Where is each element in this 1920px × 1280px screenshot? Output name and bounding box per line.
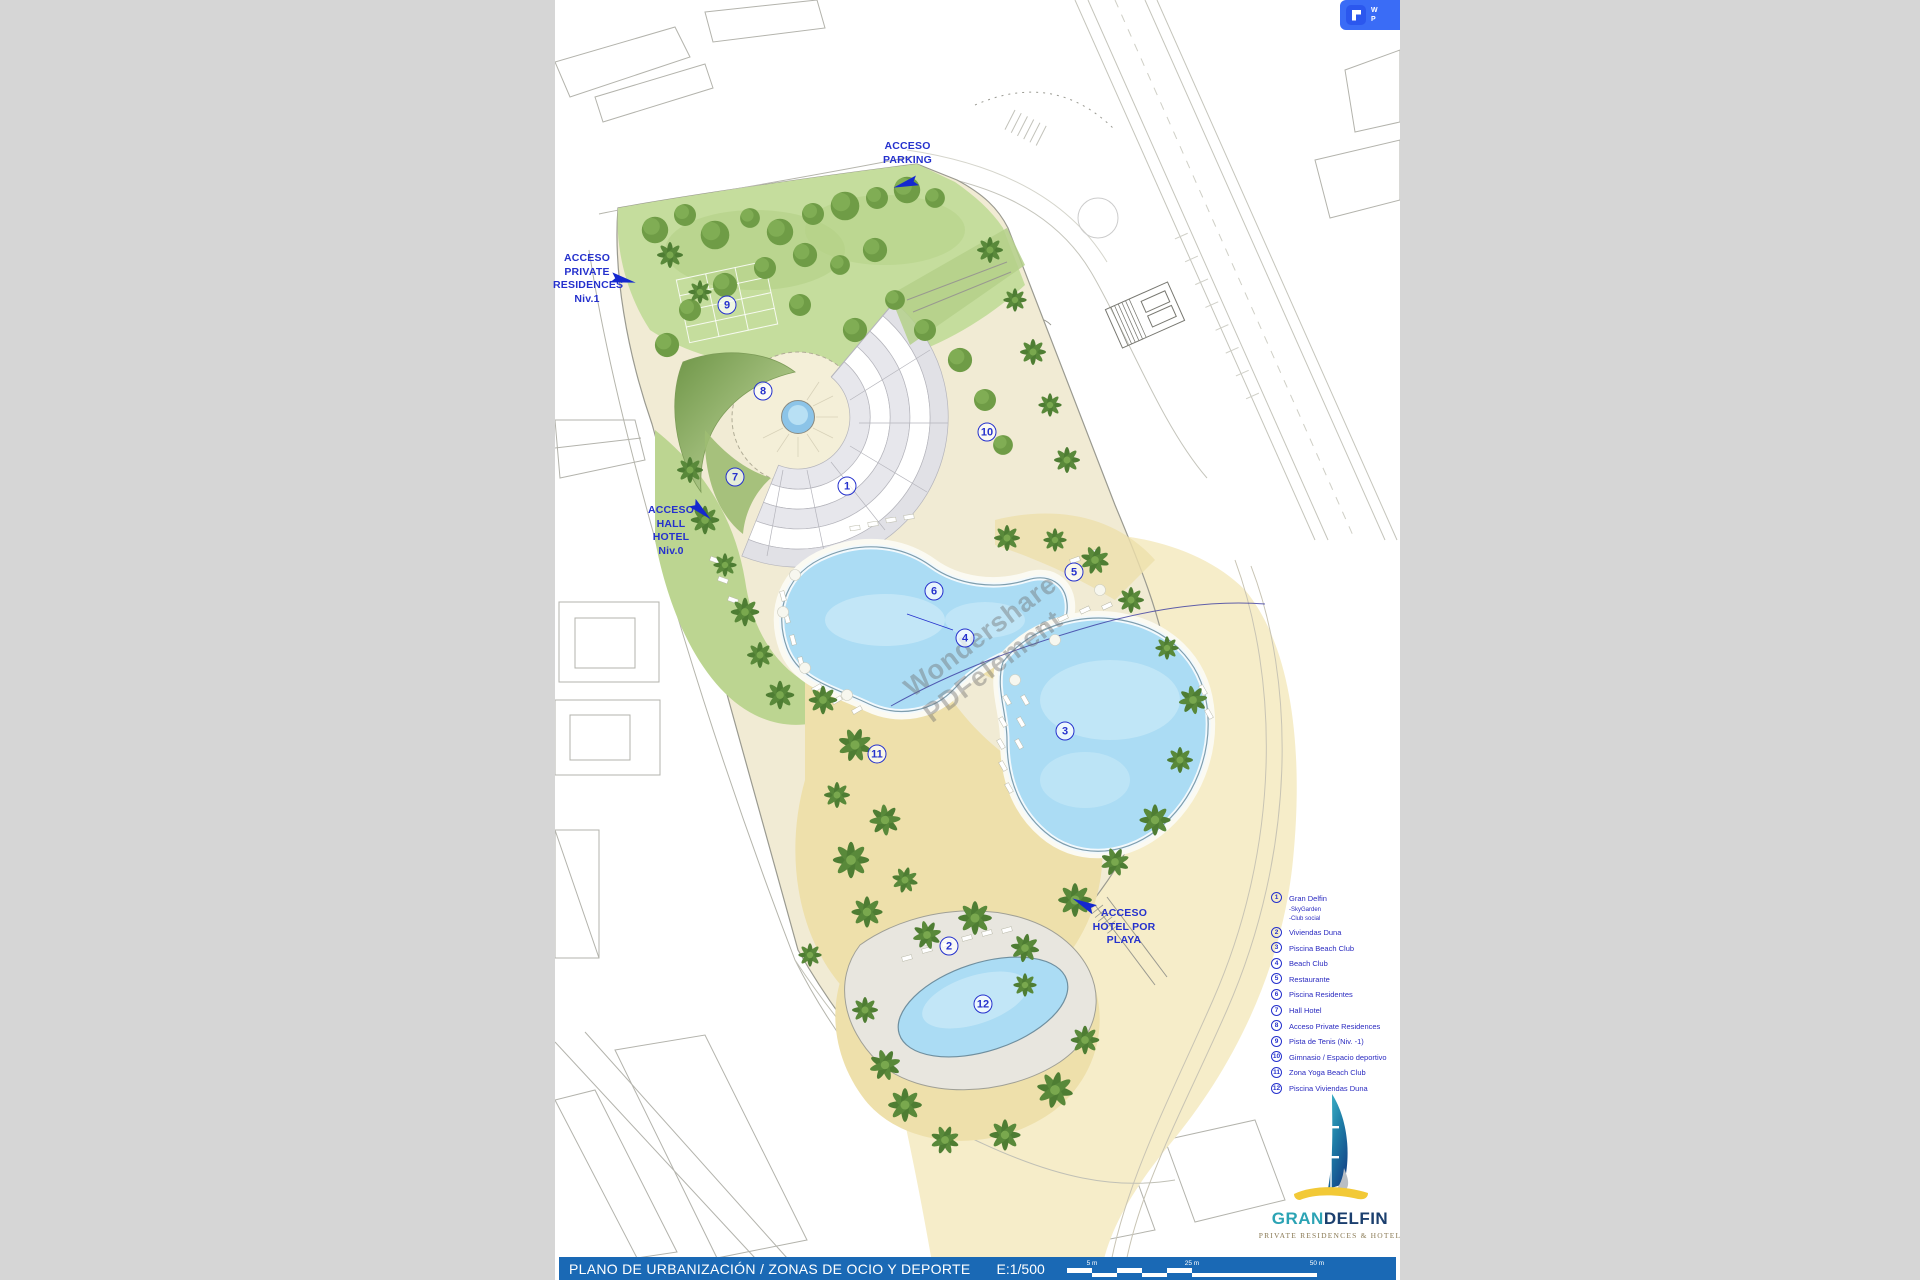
legend-item-sublabels: -SkyGarden-Club social (1289, 906, 1399, 924)
legend-item-6: 6Piscina Residentes (1271, 989, 1399, 1000)
pdfelement-badge-button[interactable]: W P (1340, 0, 1400, 30)
legend-item-number: 5 (1271, 973, 1282, 984)
badge-text: W P (1371, 6, 1387, 24)
legend-item-3: 3Piscina Beach Club (1271, 942, 1399, 953)
plan-marker-7: 7 (726, 468, 745, 487)
label-acceso-private-residences: ACCESO PRIVATE RESIDENCES Niv.1 (553, 252, 621, 307)
sheet-title-bar: PLANO DE URBANIZACIÓN / ZONAS DE OCIO Y … (559, 1257, 1396, 1280)
sheet-scale: E:1/500 (997, 1261, 1045, 1277)
legend-item-label: Piscina Residentes (1289, 989, 1353, 1000)
document-page: Wondershare PDFelement ACCESO PARKING AC… (555, 0, 1400, 1280)
legend-item-number: 1 (1271, 892, 1282, 903)
plan-marker-1: 1 (838, 477, 857, 496)
label-acceso-hotel-playa: ACCESO HOTEL POR PLAYA (1083, 907, 1165, 948)
legend-item-label: Gran Delfin (1289, 892, 1327, 903)
legend-item-label: Zona Yoga Beach Club (1289, 1067, 1366, 1078)
plan-marker-6: 6 (925, 582, 944, 601)
legend-item-4: 4Beach Club (1271, 958, 1399, 969)
legend-item-10: 10Gimnasio / Espacio deportivo (1271, 1051, 1399, 1062)
legend-item-7: 7Hall Hotel (1271, 1005, 1399, 1016)
legend-item-5: 5Restaurante (1271, 973, 1399, 984)
logo-tagline: PRIVATE RESIDENCES & HOTEL (1250, 1231, 1410, 1240)
legend-item-2: 2Viviendas Duna (1271, 927, 1399, 938)
legend-item-label: Piscina Beach Club (1289, 942, 1354, 953)
plan-marker-8: 8 (754, 382, 773, 401)
sheet-title: PLANO DE URBANIZACIÓN / ZONAS DE OCIO Y … (569, 1261, 971, 1277)
gran-delfin-logo: GRANDELFIN PRIVATE RESIDENCES & HOTEL (1250, 1090, 1410, 1240)
scale-label-5m: 5 m (1087, 1260, 1098, 1267)
logo-gran-text: GRAN (1272, 1209, 1324, 1228)
legend-item-9: 9Pista de Tenis (Niv. -1) (1271, 1036, 1399, 1047)
legend-item-number: 3 (1271, 942, 1282, 953)
scale-label-25m: 25 m (1185, 1260, 1199, 1267)
sailboat-logo-icon (1288, 1090, 1372, 1202)
legend-item-label: Gimnasio / Espacio deportivo (1289, 1051, 1387, 1062)
legend-item-label: Restaurante (1289, 973, 1330, 984)
legend-item-label: Beach Club (1289, 958, 1328, 969)
plan-marker-4: 4 (956, 629, 975, 648)
legend-item-1: 1Gran Delfin (1271, 892, 1399, 903)
legend-item-number: 10 (1271, 1051, 1282, 1062)
plan-marker-10: 10 (978, 423, 997, 442)
label-acceso-hall-hotel: ACCESO HALL HOTEL Niv.0 (635, 504, 707, 559)
legend-item-label: Acceso Private Residences (1289, 1020, 1380, 1031)
logo-wordmark: GRANDELFIN (1250, 1209, 1410, 1229)
scale-label-50m: 50 m (1310, 1260, 1324, 1267)
legend-item-11: 11Zona Yoga Beach Club (1271, 1067, 1399, 1078)
legend-item-number: 7 (1271, 1005, 1282, 1016)
pdfelement-flag-icon (1346, 5, 1366, 25)
legend-item-label: Pista de Tenis (Niv. -1) (1289, 1036, 1364, 1047)
legend-item-number: 2 (1271, 927, 1282, 938)
plan-marker-5: 5 (1065, 563, 1084, 582)
desktop-background: { "window": { "badge_lines": ["W", "P"] … (0, 0, 1920, 1280)
context-building-hatched (1105, 282, 1184, 348)
plan-marker-2: 2 (940, 937, 959, 956)
legend-item-label: Viviendas Duna (1289, 927, 1341, 938)
label-acceso-parking: ACCESO PARKING (860, 140, 955, 167)
plan-marker-3: 3 (1056, 722, 1075, 741)
legend-item-number: 4 (1271, 958, 1282, 969)
graphic-scale-bar: 5 m 25 m 50 m (1067, 1260, 1352, 1277)
legend-item-number: 9 (1271, 1036, 1282, 1047)
plan-marker-12: 12 (974, 995, 993, 1014)
legend-item-number: 6 (1271, 989, 1282, 1000)
plan-marker-11: 11 (868, 745, 887, 764)
logo-delfin-text: DELFIN (1324, 1209, 1388, 1228)
legend-item-number: 8 (1271, 1020, 1282, 1031)
plan-legend: 1Gran Delfin-SkyGarden-Club social2Vivie… (1271, 892, 1399, 1098)
legend-item-number: 11 (1271, 1067, 1282, 1078)
legend-item-8: 8Acceso Private Residences (1271, 1020, 1399, 1031)
plan-marker-9: 9 (718, 296, 737, 315)
legend-item-label: Hall Hotel (1289, 1005, 1322, 1016)
